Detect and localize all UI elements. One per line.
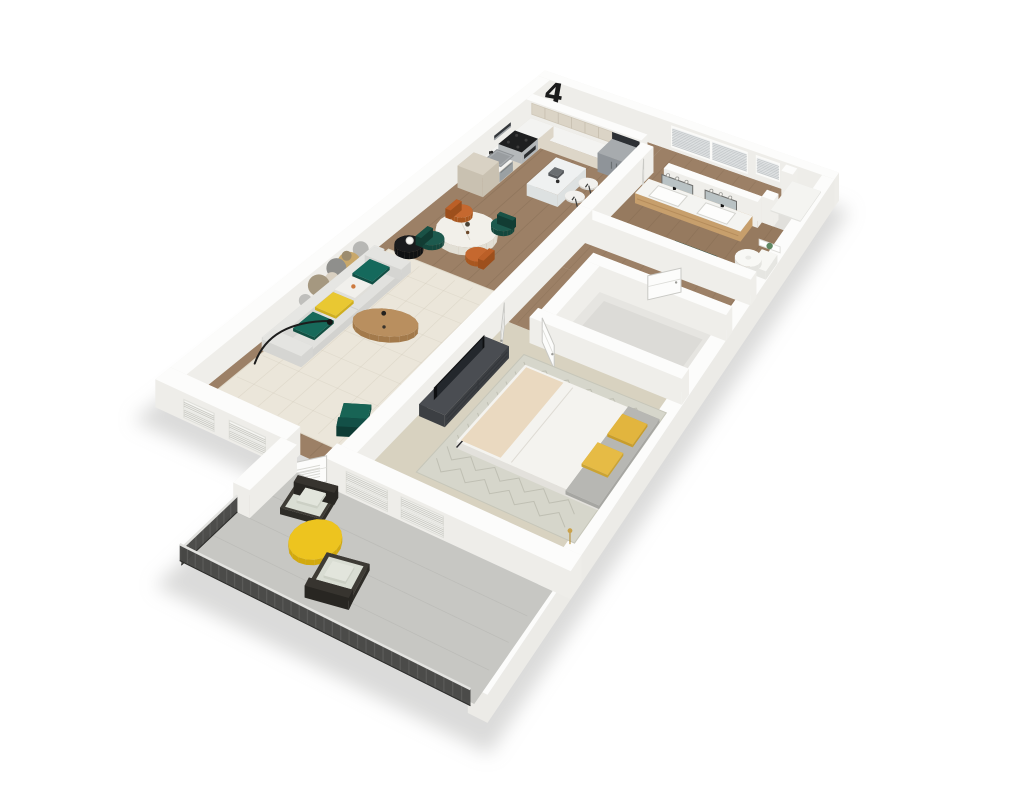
floor-plan-3d-render: 4 [0,0,1024,791]
floor-plan-page: 4 [0,0,1024,791]
